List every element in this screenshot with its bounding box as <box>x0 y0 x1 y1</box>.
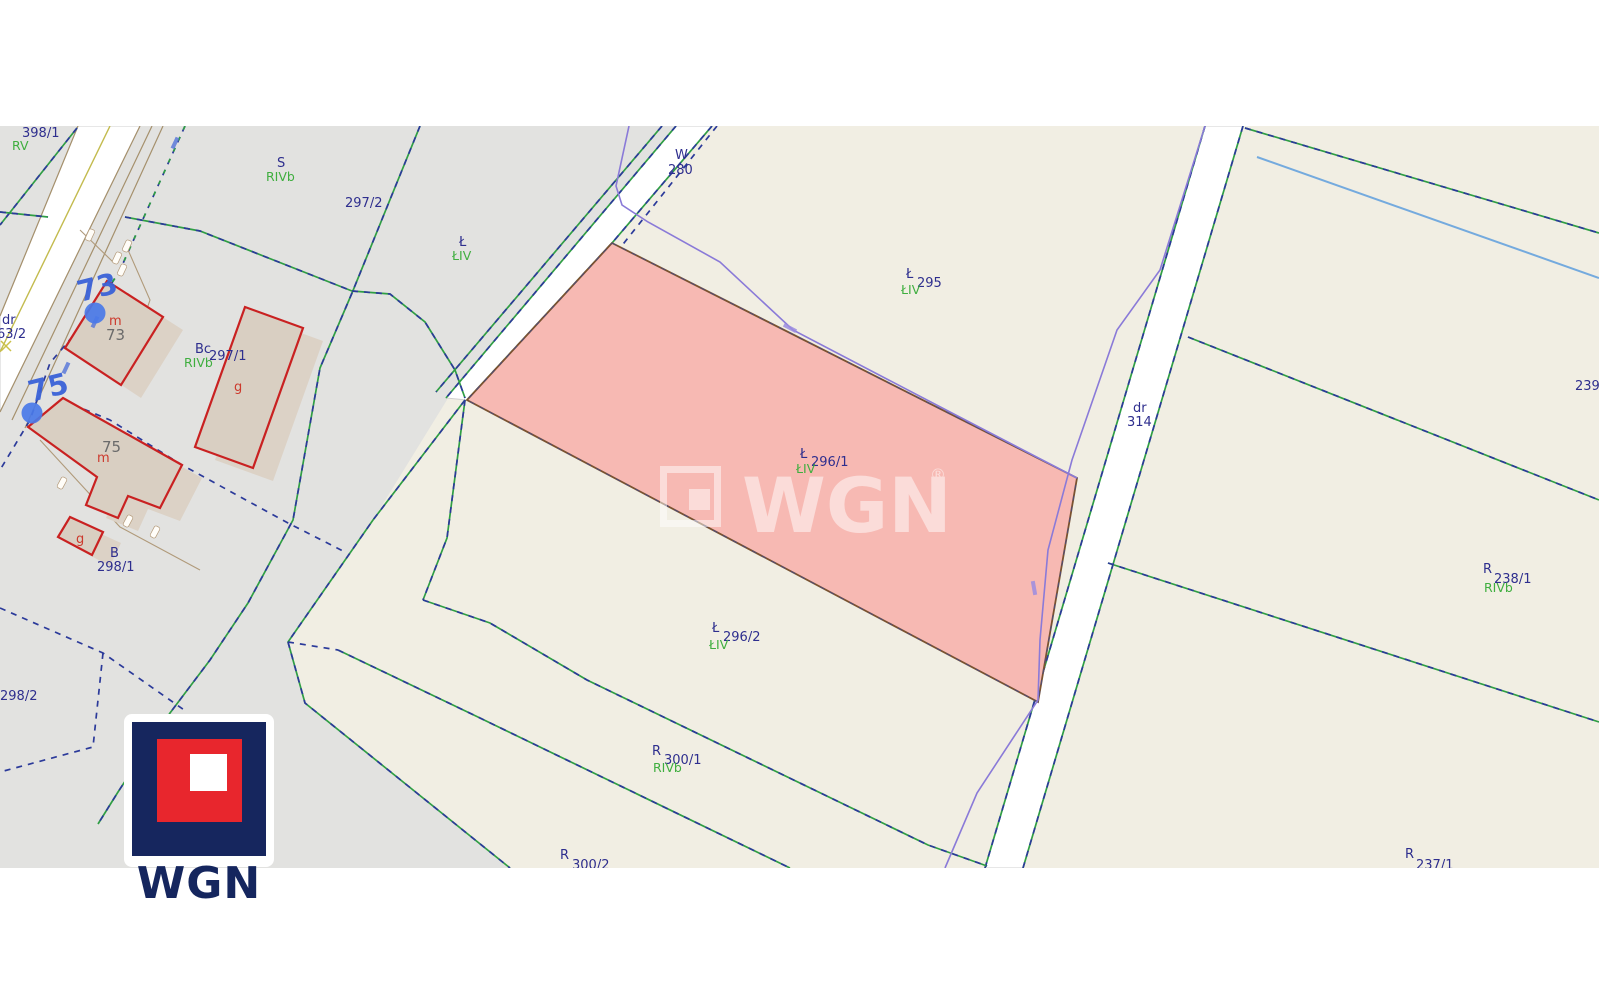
map-viewport[interactable]: 398/1 RV S RIVb 297/2 Ł ŁIV W 280 Ł 295 … <box>0 0 1599 999</box>
parcel-label-239: 239 <box>1575 379 1599 394</box>
soil-label-rv: RV <box>12 138 29 153</box>
wgn-logo-navy-square <box>132 722 266 856</box>
soil-label-rivb-300-1: RIVb <box>653 760 682 775</box>
parcel-label-295: 295 <box>917 276 942 291</box>
parcel-label-63-2: 63/2 <box>0 327 26 342</box>
soil-label-liv-295: ŁIV <box>900 282 921 297</box>
wgn-logo-wordmark: WGN <box>124 862 274 906</box>
use-label-r-238-1: R <box>1483 562 1492 577</box>
use-label-r-300-2: R <box>560 848 569 863</box>
top-white-band <box>0 0 1599 126</box>
parcel-label-298-2: 298/2 <box>0 689 37 704</box>
use-label-r-300-1: R <box>652 744 661 759</box>
watermark-brand: WGN <box>742 461 952 550</box>
soil-label-rivb-297-1: RIVb <box>184 355 213 370</box>
use-label-b-298-1: B <box>110 546 119 561</box>
building-use-g-2: g <box>76 532 84 547</box>
soil-label-rivb-238-1: RIVb <box>1484 580 1513 595</box>
parcel-label-296-2: 296/2 <box>723 630 760 645</box>
use-label-dr-314: dr <box>1133 401 1147 416</box>
watermark-registered-icon: ® <box>930 465 946 484</box>
parcel-label-314: 314 <box>1127 415 1152 430</box>
soil-label-liv: ŁIV <box>451 248 472 263</box>
parcel-label-280: 280 <box>668 163 693 178</box>
building-number-73: 73 <box>106 326 125 344</box>
wgn-logo-red-square <box>157 739 242 822</box>
soil-label-rivb: RIVb <box>266 169 295 184</box>
use-label-l-296-1: Ł <box>799 447 808 462</box>
parcel-label-297-1: 297/1 <box>209 349 246 364</box>
parcel-label-298-1: 298/1 <box>97 560 134 575</box>
wgn-logo-white-square <box>190 754 227 791</box>
use-label-l-295: Ł <box>905 267 914 282</box>
use-label-l-296-2: Ł <box>711 621 720 636</box>
use-label-dr-63-2: dr <box>2 313 16 328</box>
building-use-g-1: g <box>234 380 242 395</box>
building-use-m-75: m <box>97 451 110 466</box>
wgn-logo <box>124 714 274 867</box>
use-label-w: W <box>675 148 688 163</box>
use-label-r-237-1: R <box>1405 847 1414 862</box>
soil-label-liv-296-2: ŁIV <box>708 637 729 652</box>
parcel-label-297-2: 297/2 <box>345 196 382 211</box>
